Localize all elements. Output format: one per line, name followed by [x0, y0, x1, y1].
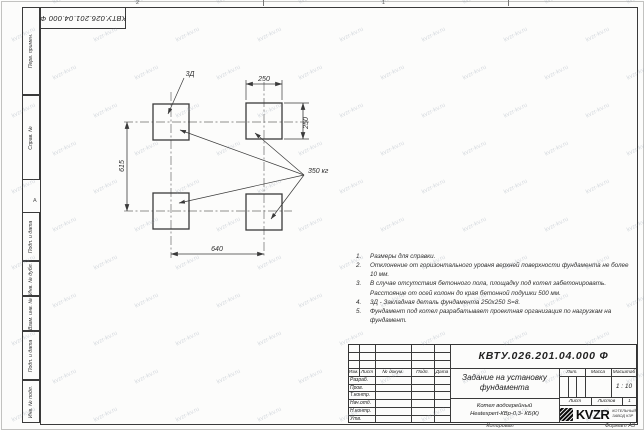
note-text: В случае отсутствия бетонного пола, площ… — [370, 279, 632, 297]
dim-250-right: 250 — [303, 117, 310, 130]
format-label: Формат А3 — [575, 423, 635, 429]
note-text: Размеры для справки. — [370, 252, 632, 261]
dim-250-top: 250 — [257, 76, 270, 83]
note-text: 3Д - Закладная деталь фундамента 250х250… — [370, 298, 632, 307]
centerlines — [124, 82, 309, 258]
embed-detail-label: 3Д — [186, 71, 195, 78]
title-block-border — [348, 344, 637, 423]
note-text: Фундамент под котел разрабатывает проект… — [370, 307, 632, 325]
copied-label: Копировал — [440, 423, 560, 429]
note-item: 3. В случае отсутствия бетонного пола, п… — [352, 279, 632, 297]
weight-label: 350 кг — [308, 168, 329, 175]
dim-640-bottom: 640 — [211, 246, 223, 253]
extension-lines — [246, 80, 309, 139]
drawing-sheet: 2 1 А КВТУ.026.201.04.000 Ф Перв. примен… — [0, 0, 644, 430]
dim-615-left: 615 — [119, 160, 126, 172]
note-item: 4. 3Д - Закладная деталь фундамента 250х… — [352, 298, 632, 307]
note-item: 5. Фундамент под котел разрабатывает про… — [352, 307, 632, 325]
note-item: 1. Размеры для справки. — [352, 252, 632, 261]
notes-list: 1. Размеры для справки. 2. Отклонение от… — [352, 252, 632, 325]
note-item: 2. Отклонение от горизонтального уровня … — [352, 261, 632, 279]
note-text: Отклонение от горизонтального уровня вер… — [370, 261, 632, 279]
